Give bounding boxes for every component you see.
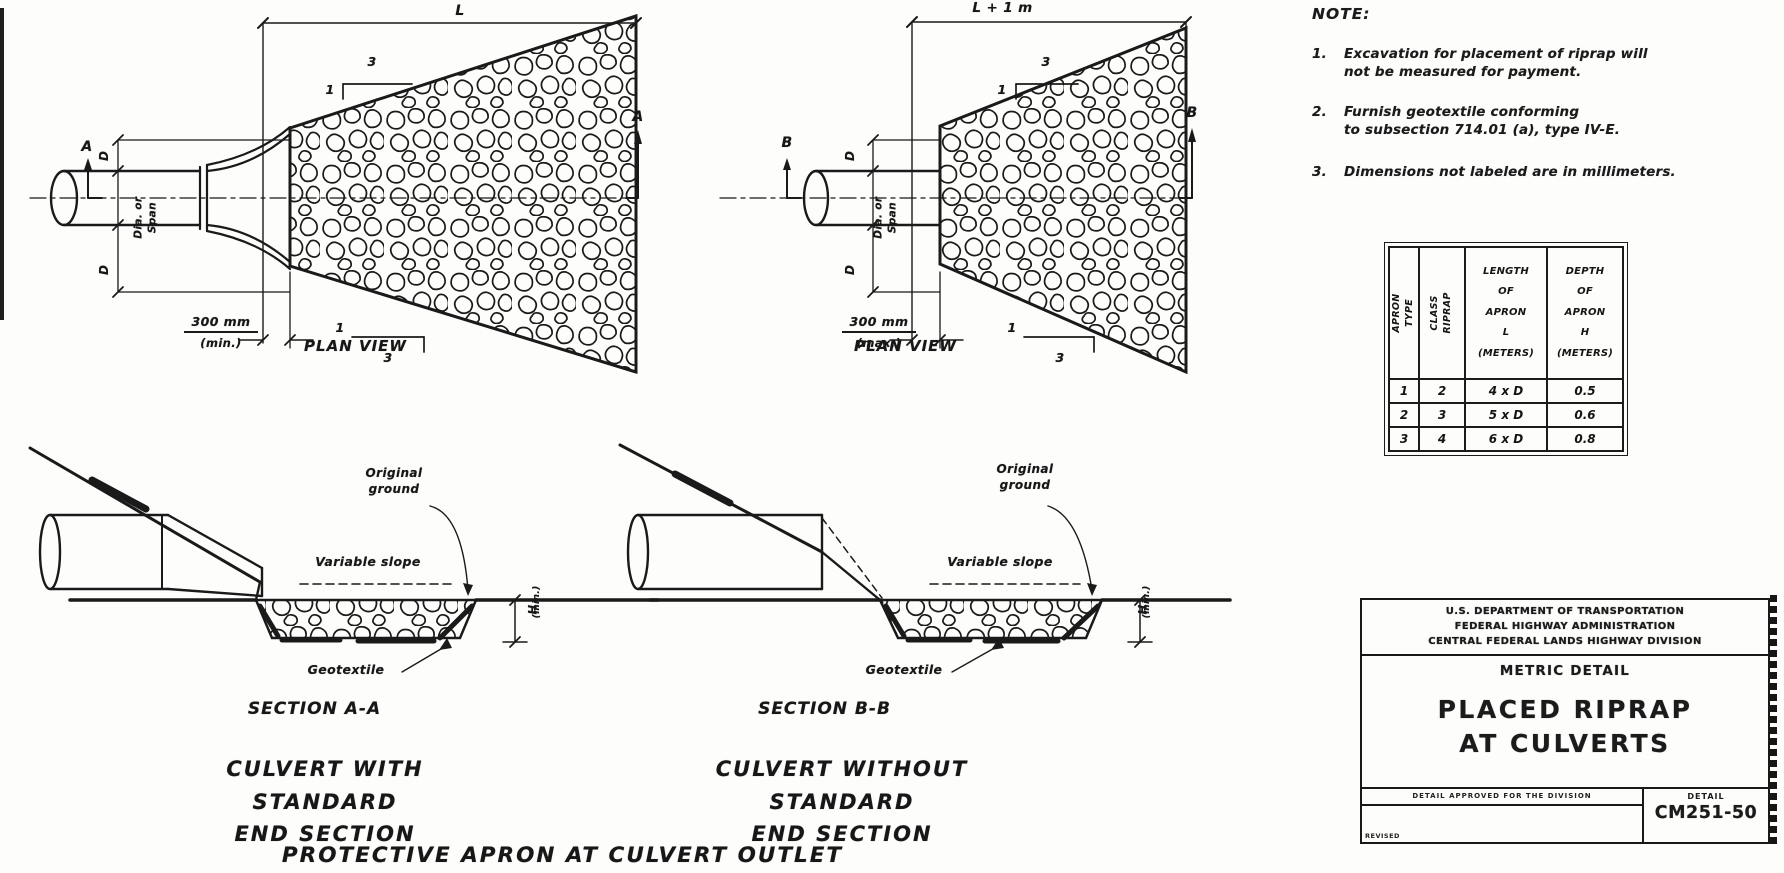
detail-label: DETAIL [1644,792,1768,801]
agency-header: U.S. DEPARTMENT OF TRANSPORTATION FEDERA… [1362,600,1768,656]
note-number: 1. [1312,46,1327,62]
note-text: Dimensions not labeled are in millimeter… [1344,164,1676,180]
section-a-subcaption: CULVERT WITH STANDARD END SECTION [150,753,500,851]
table-cell: 1 [1389,379,1419,403]
original-ground-label: Original ground [352,466,436,497]
table-cell: 0.6 [1547,403,1623,427]
section-marker-a: A [76,138,98,156]
dim-d-label: D [97,147,113,165]
note-text: to subsection 714.01 (a), type IV-E. [1344,122,1620,138]
section-b-b-drawing [580,410,1240,690]
revised-label: REVISED [1365,832,1400,840]
table-cell: 5 x D [1465,403,1547,427]
detail-number: CM251-50 [1644,803,1768,823]
pipe-size-label: Dia. or Span [872,182,899,254]
variable-slope-label: Variable slope [306,554,430,570]
table-cell: 2 [1419,379,1465,403]
table-cell: 6 x D [1465,427,1547,451]
table-row: 3 4 6 x D 0.8 [1389,427,1623,451]
note-number: 2. [1312,104,1327,120]
plan-view-caption: PLAN VIEW [298,337,413,357]
drawing-sheet: L 3 1 1 3 A A D D Dia. or Span 300 mm (m… [0,0,1784,873]
section-b-subcaption: CULVERT WITHOUT STANDARD END SECTION [652,753,1032,851]
notes-heading: NOTE: [1312,5,1371,23]
dim-length-label: L + 1 m [955,0,1050,18]
plan-view-without-end-section-drawing [680,0,1210,385]
offset-dimension-value: 300 mm [184,314,258,333]
note-text: not be measured for payment. [1344,64,1581,80]
slope-rise-label: 1 [994,82,1010,98]
pipe-size-label: Dia. or Span [132,182,159,254]
slope-rise-label: 1 [1004,320,1020,336]
section-marker-a: A [627,108,649,126]
table-cell: 4 [1419,427,1465,451]
offset-dimension-qualifier: (min.) [192,336,250,351]
detail-number-cell: DETAIL CM251-50 [1642,789,1768,842]
table-cell: 3 [1389,427,1419,451]
slope-rise-label: 1 [322,82,338,98]
sheet-edge-hatching [1770,594,1777,844]
title-block: U.S. DEPARTMENT OF TRANSPORTATION FEDERA… [1360,598,1770,844]
table-row: 1 2 4 x D 0.5 [1389,379,1623,403]
depth-dim-qualifier: (min.) [532,572,544,632]
note-text: Furnish geotextile conforming [1344,104,1579,120]
dim-d-label: D [843,261,859,279]
section-a-caption: SECTION A-A [232,698,397,720]
sheet-title: PLACED RIPRAP AT CULVERTS [1362,693,1768,761]
plan-view-caption: PLAN VIEW [848,337,963,357]
table-header-length: LENGTH OF APRON L (METERS) [1466,262,1546,365]
depth-dim-qualifier: (min.) [1142,572,1154,632]
geotextile-label: Geotextile [858,662,950,678]
dim-length-label: L [440,2,480,20]
section-marker-b: B [776,134,798,152]
table-cell: 2 [1389,403,1419,427]
table-cell: 0.5 [1547,379,1623,403]
section-a-a-drawing [10,410,670,690]
geotextile-label: Geotextile [300,662,392,678]
table-cell: 3 [1419,403,1465,427]
original-ground-label: Original ground [983,462,1067,493]
note-text: Excavation for placement of riprap will [1344,46,1648,62]
slope-run-label: 3 [362,54,382,70]
metric-detail-label: METRIC DETAIL [1362,656,1768,679]
table-header-class-riprap: CLASS RIPRAP [1429,250,1455,376]
slope-run-label: 3 [1050,350,1070,366]
table-header-depth: DEPTH OF APRON H (METERS) [1548,262,1622,365]
variable-slope-label: Variable slope [938,554,1062,570]
agency-line: FEDERAL HIGHWAY ADMINISTRATION [1362,619,1768,634]
dim-d-label: D [97,261,113,279]
table-cell: 0.8 [1547,427,1623,451]
riprap-sizing-table: APRON TYPE CLASS RIPRAP LENGTH OF APRON … [1388,246,1624,452]
dim-d-label: D [843,147,859,165]
offset-dimension-value: 300 mm [842,314,916,333]
title-block-footer: DETAIL APPROVED FOR THE DIVISION REVISED… [1362,787,1768,842]
agency-line: U.S. DEPARTMENT OF TRANSPORTATION [1362,604,1768,619]
agency-line: CENTRAL FEDERAL LANDS HIGHWAY DIVISION [1362,634,1768,649]
slope-rise-label: 1 [332,320,348,336]
section-marker-b: B [1181,104,1203,122]
drawing-title-caption: PROTECTIVE APRON AT CULVERT OUTLET [275,842,850,870]
section-b-caption: SECTION B-B [742,698,907,720]
note-number: 3. [1312,164,1327,180]
table-header-apron-type: APRON TYPE [1391,250,1417,376]
slope-run-label: 3 [1036,54,1056,70]
table-row: 2 3 5 x D 0.6 [1389,403,1623,427]
table-cell: 4 x D [1465,379,1547,403]
approval-stamp-text: DETAIL APPROVED FOR THE DIVISION [1362,789,1642,806]
